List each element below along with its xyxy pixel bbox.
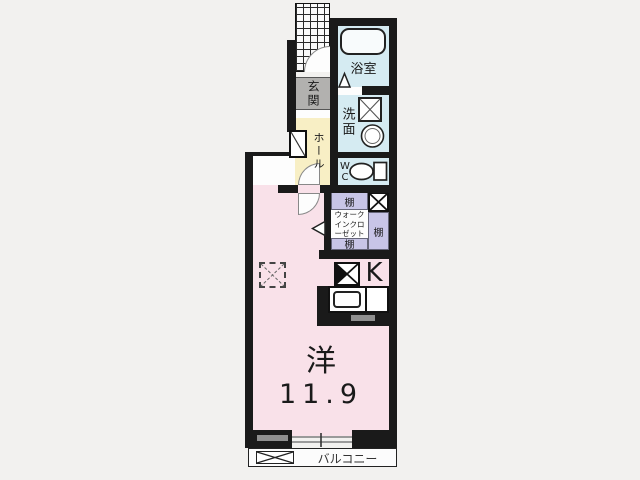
toilet-bowl-icon: [350, 164, 373, 180]
closet-shelf-bottom-label: 棚: [331, 237, 368, 250]
washroom-label: 洗面: [339, 98, 355, 146]
balcony-storage-cross: [257, 452, 293, 463]
overhead-storage-cross: [261, 264, 284, 286]
sliding-window-icon: [292, 437, 352, 442]
walk-in-closet-label: ウォークインクローゼット: [331, 210, 368, 238]
balcony-label: バルコニー: [300, 451, 395, 465]
pipe-space-cross: [369, 193, 388, 211]
toilet-label: WC: [338, 158, 352, 185]
bathroom-label: 浴室: [338, 58, 389, 76]
washing-machine-cross: [360, 99, 380, 120]
kitchen-label: K: [360, 257, 388, 288]
toilet-tank-icon: [374, 163, 387, 181]
closet-door-triangle: [313, 222, 326, 236]
entrance-label: 玄関: [295, 79, 332, 109]
floor-plan: 玄関 ホール 浴室 洗面 WC 棚 棚 棚 ウォークインクローゼット K 洋 1…: [0, 0, 640, 480]
stove-triangle: [336, 264, 348, 284]
shoe-cabinet-diagonal: [291, 132, 305, 156]
closet-shelf-top-label: 棚: [331, 192, 368, 210]
western-room-area: 11.9: [253, 378, 389, 410]
closet-shelf-right-label: 棚: [368, 212, 389, 250]
western-room-label: 洋: [253, 340, 389, 376]
hall-label: ホール: [306, 119, 330, 183]
